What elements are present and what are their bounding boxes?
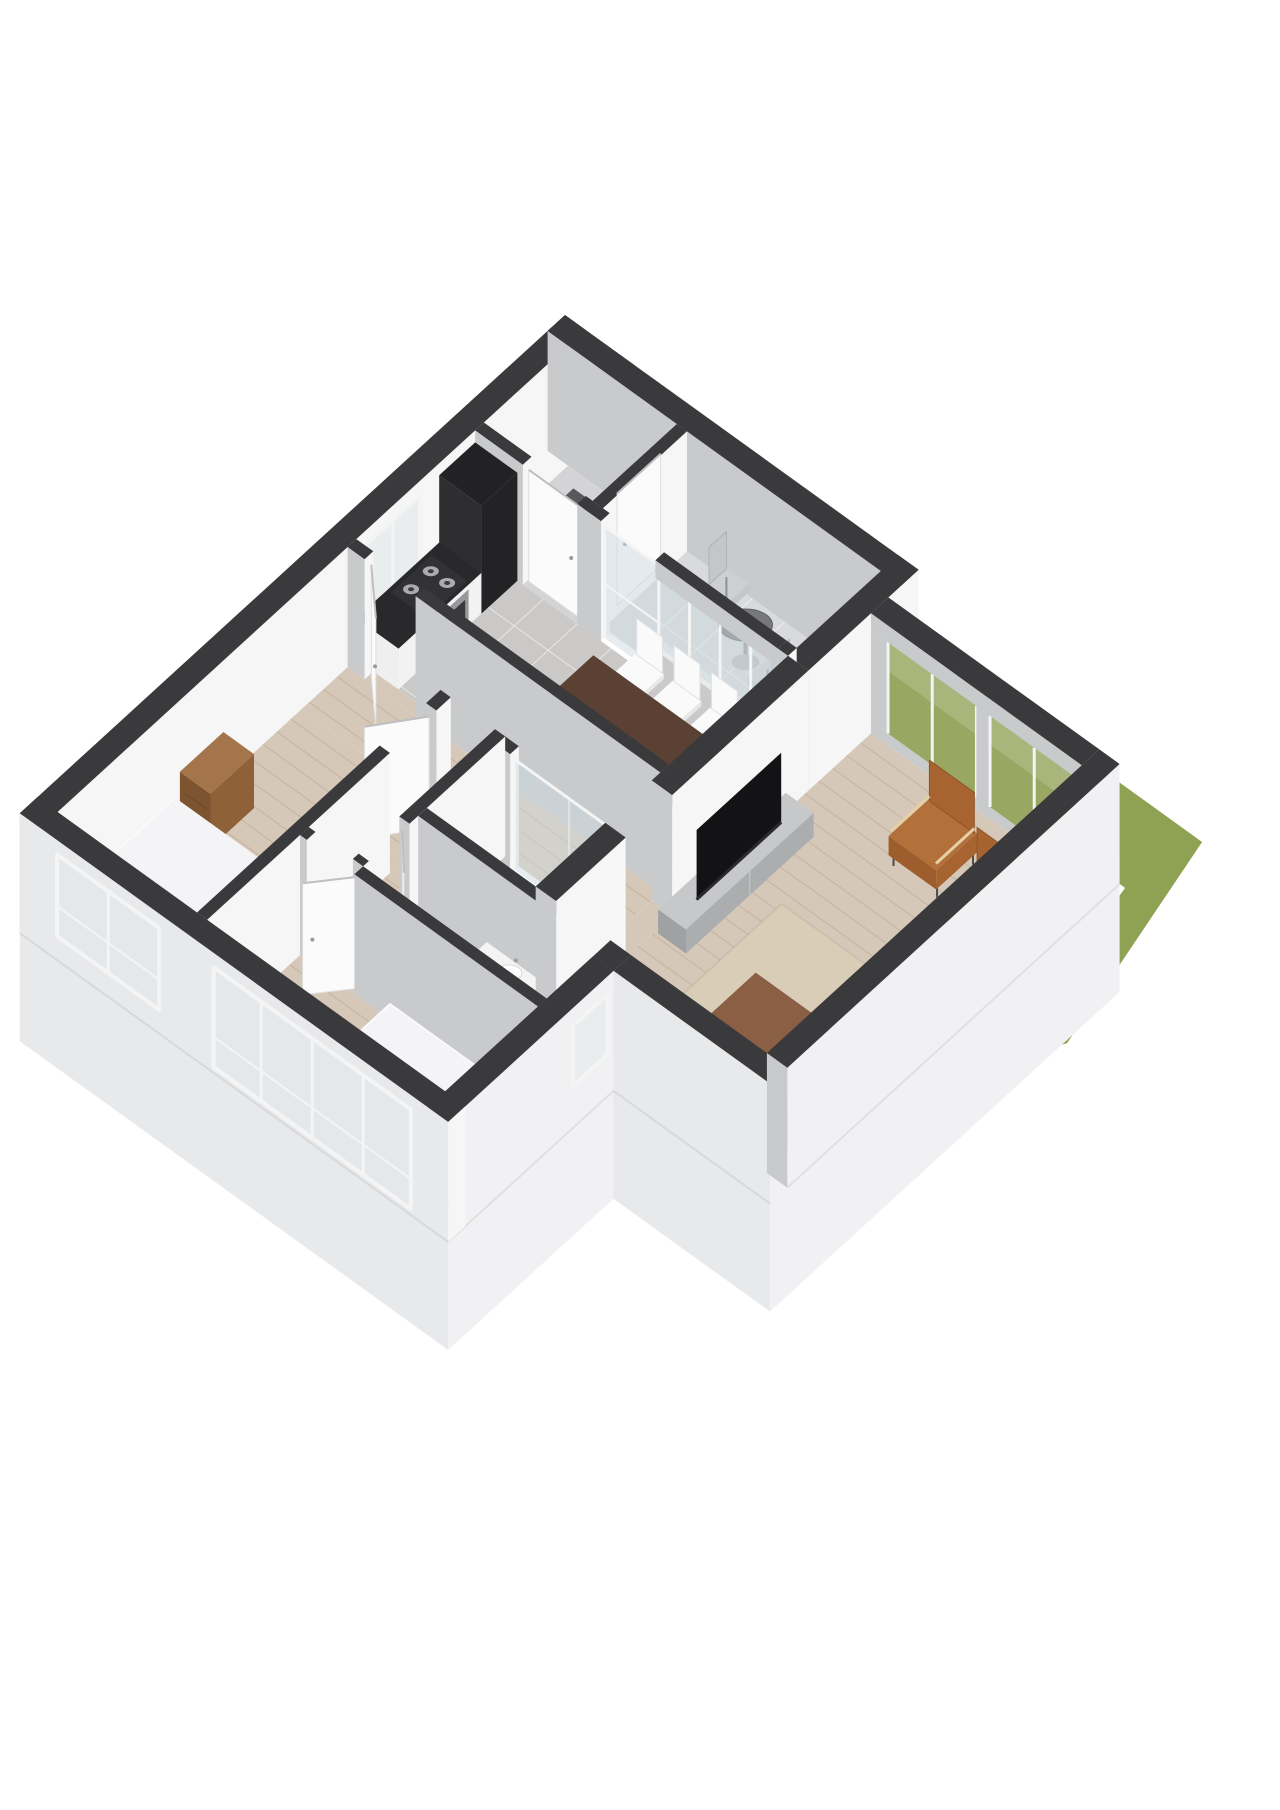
floorplan-scene	[0, 0, 1280, 1810]
floorplan-3d-render	[0, 0, 1280, 1810]
